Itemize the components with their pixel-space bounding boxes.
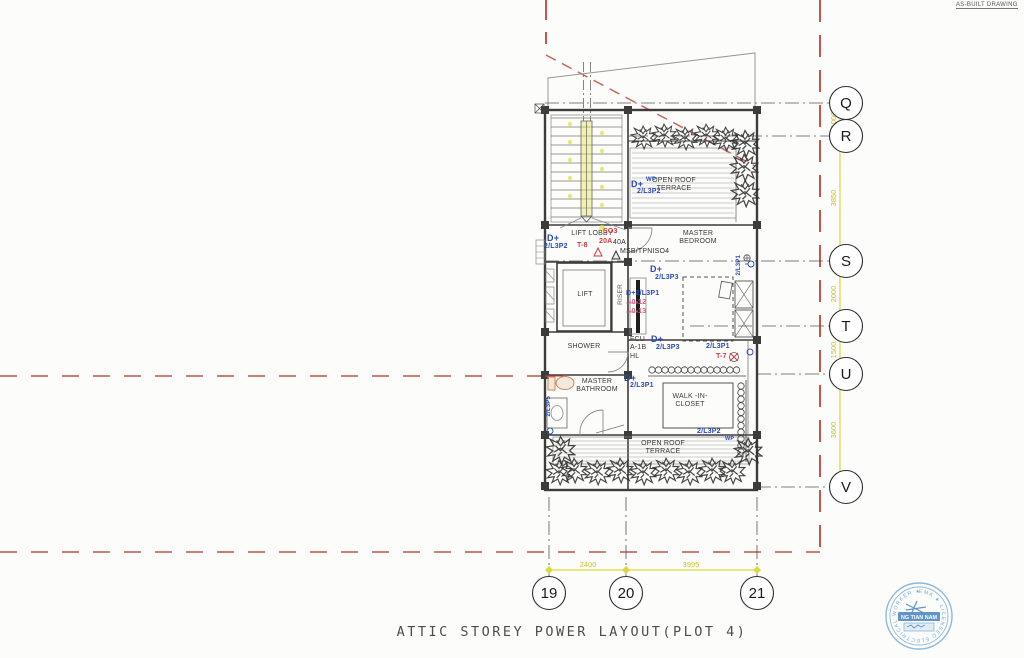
circuit-label: 2/L3P5 bbox=[546, 396, 553, 417]
site-boundary-lines bbox=[0, 0, 820, 552]
tag-label: MSB/TPNISO4 bbox=[620, 248, 669, 256]
room-label-master-bedroom: MASTER BEDROOM bbox=[672, 230, 724, 247]
room-label-riser: RISER bbox=[617, 284, 625, 305]
staircase bbox=[535, 104, 626, 230]
grid-bubble-21: 21 bbox=[749, 585, 766, 602]
as-built-note: AS-BUILT DRAWING bbox=[956, 2, 1018, 9]
grid-bubble-s: S bbox=[841, 253, 851, 270]
tag-label: -0-13 bbox=[629, 308, 646, 316]
room-label-lift: LIFT bbox=[577, 291, 592, 299]
circuit-label: 2/L3P1 bbox=[630, 382, 654, 390]
grid-bubble-19: 19 bbox=[541, 585, 558, 602]
svg-text:3850: 3850 bbox=[829, 190, 838, 207]
svg-text:NG TIAN NAM: NG TIAN NAM bbox=[901, 615, 937, 621]
building-walls bbox=[545, 110, 757, 490]
circuit-label: D+2/L3P1 bbox=[626, 290, 659, 298]
drawing-canvas: 1000 3850 2000 1500 3600 2400 3995 Q R S… bbox=[0, 0, 1024, 658]
tag-label: T-7 bbox=[716, 353, 727, 361]
circuit-label: 2/L3P2 bbox=[637, 188, 661, 196]
bedroom-furniture bbox=[683, 277, 753, 341]
tag-label: SO3 bbox=[603, 228, 618, 236]
grid-bubble-v: V bbox=[841, 479, 851, 496]
room-label-shower: SHOWER bbox=[568, 343, 601, 351]
grid-bubble-r: R bbox=[841, 128, 852, 145]
circuit-label: 2/L3P2 bbox=[697, 428, 721, 436]
svg-text:3995: 3995 bbox=[683, 560, 700, 569]
circuit-label: 2/L3P3 bbox=[655, 274, 679, 282]
svg-text:3600: 3600 bbox=[829, 422, 838, 439]
circuit-label: WP bbox=[646, 177, 656, 184]
lift-core bbox=[536, 240, 611, 331]
room-label-walk-in-closet: WALK -IN- CLOSET bbox=[667, 393, 713, 410]
circuit-label: 2/L3P1 bbox=[736, 255, 743, 276]
room-label-master-bathroom: MASTER BATHROOM bbox=[569, 378, 625, 395]
circuit-label: WP bbox=[725, 436, 734, 442]
svg-text:2400: 2400 bbox=[580, 560, 597, 569]
grid-bubble-u: U bbox=[841, 366, 852, 383]
tag-label: 20A bbox=[599, 238, 612, 246]
tag-label: 40A bbox=[613, 239, 626, 247]
grid-bubble-t: T bbox=[841, 318, 850, 335]
grid-bubble-20: 20 bbox=[618, 585, 635, 602]
svg-text:2000: 2000 bbox=[829, 286, 838, 303]
approval-stamp: EMA ★ LICENSED ELECTRICAL WORKER ★ NG TI… bbox=[886, 583, 952, 649]
circuit-label: 2/L3P3 bbox=[656, 344, 680, 352]
grid-bubble-q: Q bbox=[840, 95, 852, 112]
floor-plan-linework: 1000 3850 2000 1500 3600 2400 3995 Q R S… bbox=[0, 0, 1024, 658]
svg-text:1500: 1500 bbox=[829, 342, 838, 359]
circuit-label: 2/L3P1 bbox=[706, 343, 730, 351]
tag-label: T-8 bbox=[577, 242, 588, 250]
socket-icon bbox=[748, 261, 754, 267]
circuit-label: 2/L3P2 bbox=[544, 243, 568, 251]
room-label-terrace-bottom: OPEN ROOF TERRACE bbox=[637, 440, 689, 457]
tag-label: -0-12 bbox=[629, 299, 646, 307]
drawing-title: ATTIC STOREY POWER LAYOUT(PLOT 4) bbox=[397, 624, 748, 640]
